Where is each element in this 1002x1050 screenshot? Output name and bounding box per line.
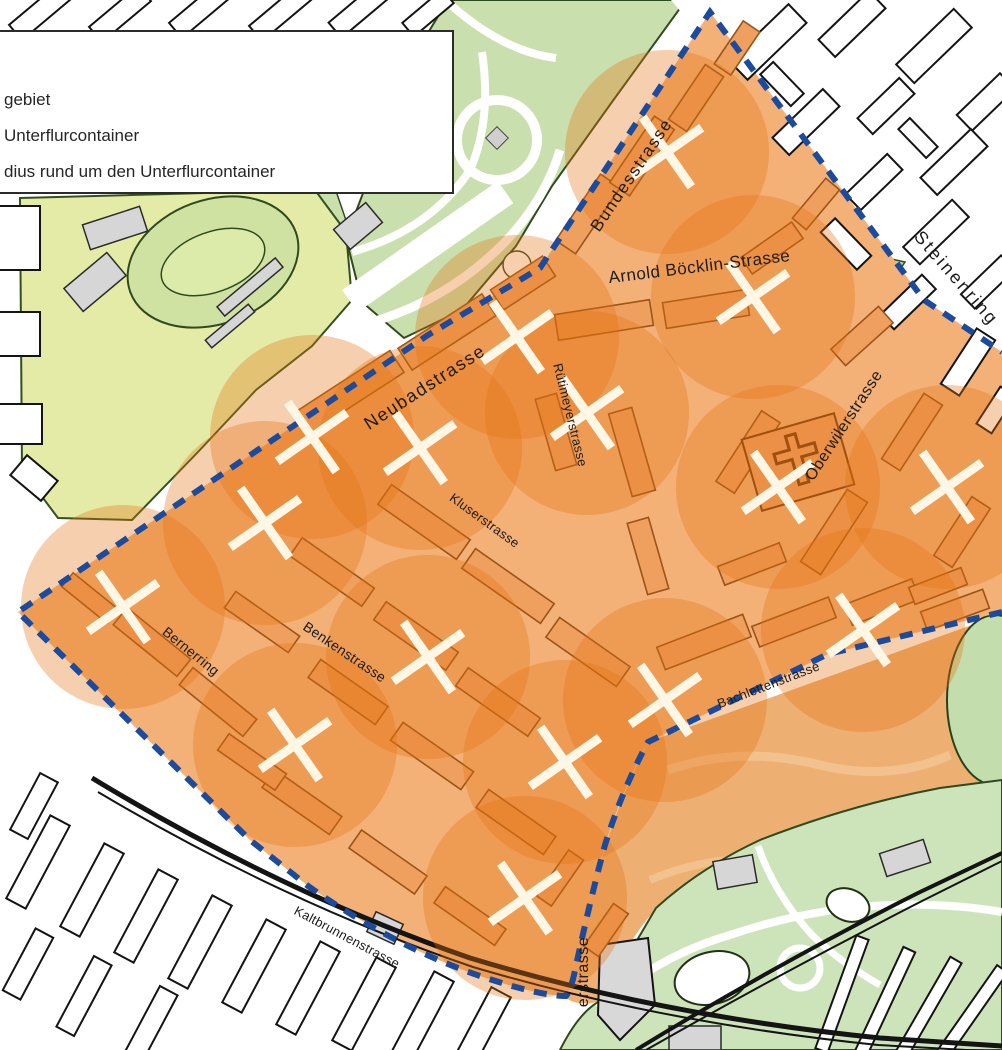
building-outline	[0, 312, 40, 356]
street-label-12: erstrasse	[575, 937, 592, 1007]
legend-item-3: dius rund um den Unterflurcontainer	[4, 154, 452, 190]
gray-building	[713, 855, 757, 890]
gray-building	[669, 1026, 721, 1050]
building-outline	[0, 404, 42, 444]
legend-item-2: Unterflurcontainer	[4, 118, 452, 154]
map-viewport: BundesstrasseSteinenringArnold Böcklin-S…	[0, 0, 1002, 1050]
legend-item-1: gebiet	[4, 82, 452, 118]
legend-box: gebietUnterflurcontainerdius rund um den…	[0, 30, 454, 194]
building-outline	[0, 206, 40, 270]
